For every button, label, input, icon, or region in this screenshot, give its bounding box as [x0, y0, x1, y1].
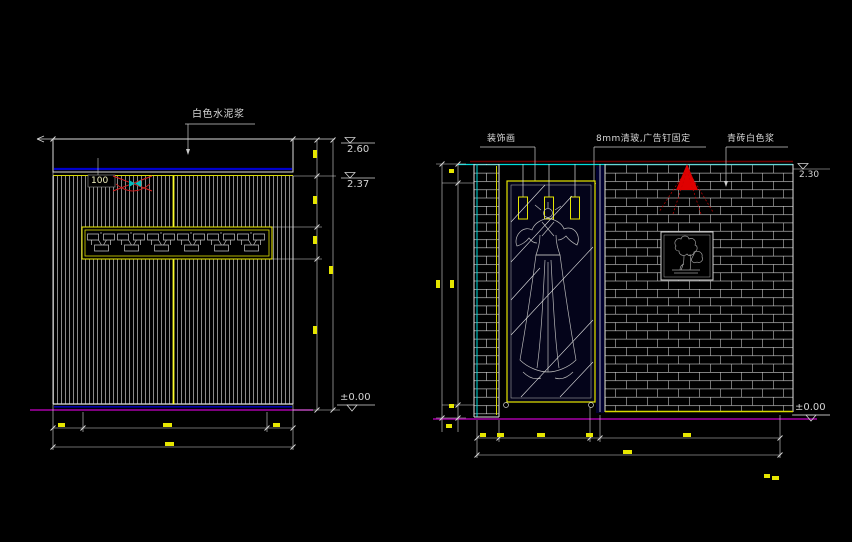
- level-2-37: 2.37: [347, 180, 369, 190]
- cad-canvas: 白色水泥浆 100 2.60 2.37 ±0.00 装饰画 8mm清玻,广告钉固…: [0, 0, 852, 542]
- level-ground-right: ±0.00: [795, 403, 826, 413]
- brick-wall: [605, 164, 793, 412]
- left-wall-elevation: [30, 124, 375, 450]
- art-panel: [504, 164, 596, 408]
- note-grey-brick: 青砖白色浆: [727, 134, 775, 144]
- cad-linework: [0, 0, 852, 542]
- side-column-section: [474, 164, 499, 417]
- slat-wall: [53, 176, 293, 407]
- level-2-30: 2.30: [799, 170, 819, 180]
- flower-picture: [661, 232, 713, 280]
- level-ground-left: ±0.00: [340, 393, 371, 403]
- note-art-picture: 装饰画: [487, 134, 516, 144]
- note-white-cement: 白色水泥浆: [192, 110, 245, 120]
- right-wall-elevation: [433, 147, 830, 480]
- glass-edge: [596, 164, 604, 413]
- level-symbols-right: [792, 164, 830, 422]
- cement-band: [53, 139, 293, 176]
- level-2-60: 2.60: [347, 145, 369, 155]
- dim-offset-100: 100: [91, 176, 108, 186]
- lattice-grille: [82, 227, 272, 259]
- note-glass-fixing: 8mm清玻,广告钉固定: [596, 134, 691, 144]
